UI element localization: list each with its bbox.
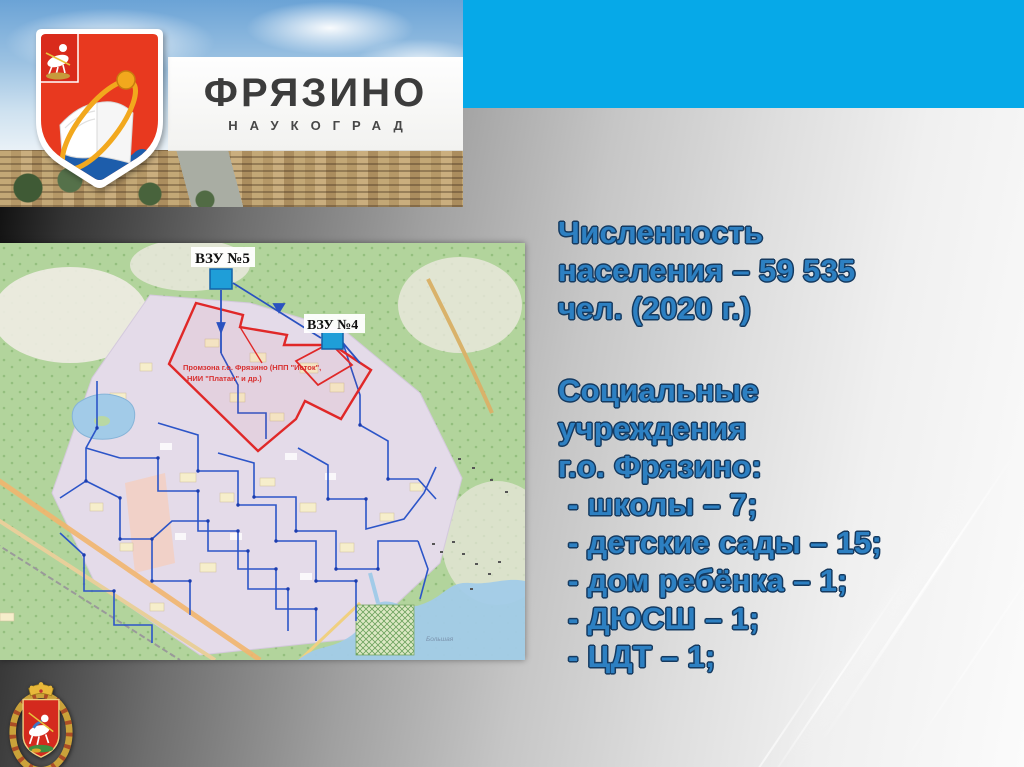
stats-text-block: Численность населения – 59 535 чел. (202…	[558, 214, 1024, 676]
social-heading-line: учреждения	[558, 410, 1024, 448]
header-title: ФРЯЗИНО	[168, 71, 463, 116]
cyan-accent-bar	[463, 0, 1024, 108]
presentation-slide: ФРЯЗИНО НАУКОГРАД	[0, 0, 1024, 767]
streak	[711, 662, 830, 767]
moscow-region-coat-of-arms	[8, 676, 74, 767]
social-item: - ЦДТ – 1;	[558, 638, 1024, 676]
social-heading-line: г.о. Фрязино:	[558, 448, 1024, 486]
river-label: Большая	[426, 636, 454, 643]
vzu4-marker	[322, 331, 343, 349]
fryazino-coat-of-arms	[32, 25, 167, 197]
population-line: чел. (2020 г.)	[558, 290, 1024, 328]
social-item: - школы – 7;	[558, 486, 1024, 524]
population-line: Численность	[558, 214, 1024, 252]
vzu5-marker	[210, 269, 232, 289]
header-title-band: ФРЯЗИНО НАУКОГРАД	[168, 57, 463, 151]
map-label-vzu4: ВЗУ №4	[307, 318, 358, 333]
social-heading-line: Социальные	[558, 372, 1024, 410]
social-item: - ДЮСШ – 1;	[558, 600, 1024, 638]
spacer	[558, 328, 1024, 372]
promzone-label-line2: НИИ "Платан" и др.)	[187, 374, 262, 383]
header-subtitle: НАУКОГРАД	[168, 118, 463, 133]
header-photo-banner: ФРЯЗИНО НАУКОГРАД	[0, 0, 463, 207]
social-item: - дом ребёнка – 1;	[558, 562, 1024, 600]
town-map: Промзона г.о. Фрязино (НПП "Исток", НИИ …	[0, 243, 525, 660]
social-item: - детские сады – 15;	[558, 524, 1024, 562]
population-line: населения – 59 535	[558, 252, 1024, 290]
map-label-vzu5: ВЗУ №5	[195, 251, 250, 267]
promzone-label-line1: Промзона г.о. Фрязино (НПП "Исток",	[183, 363, 321, 372]
